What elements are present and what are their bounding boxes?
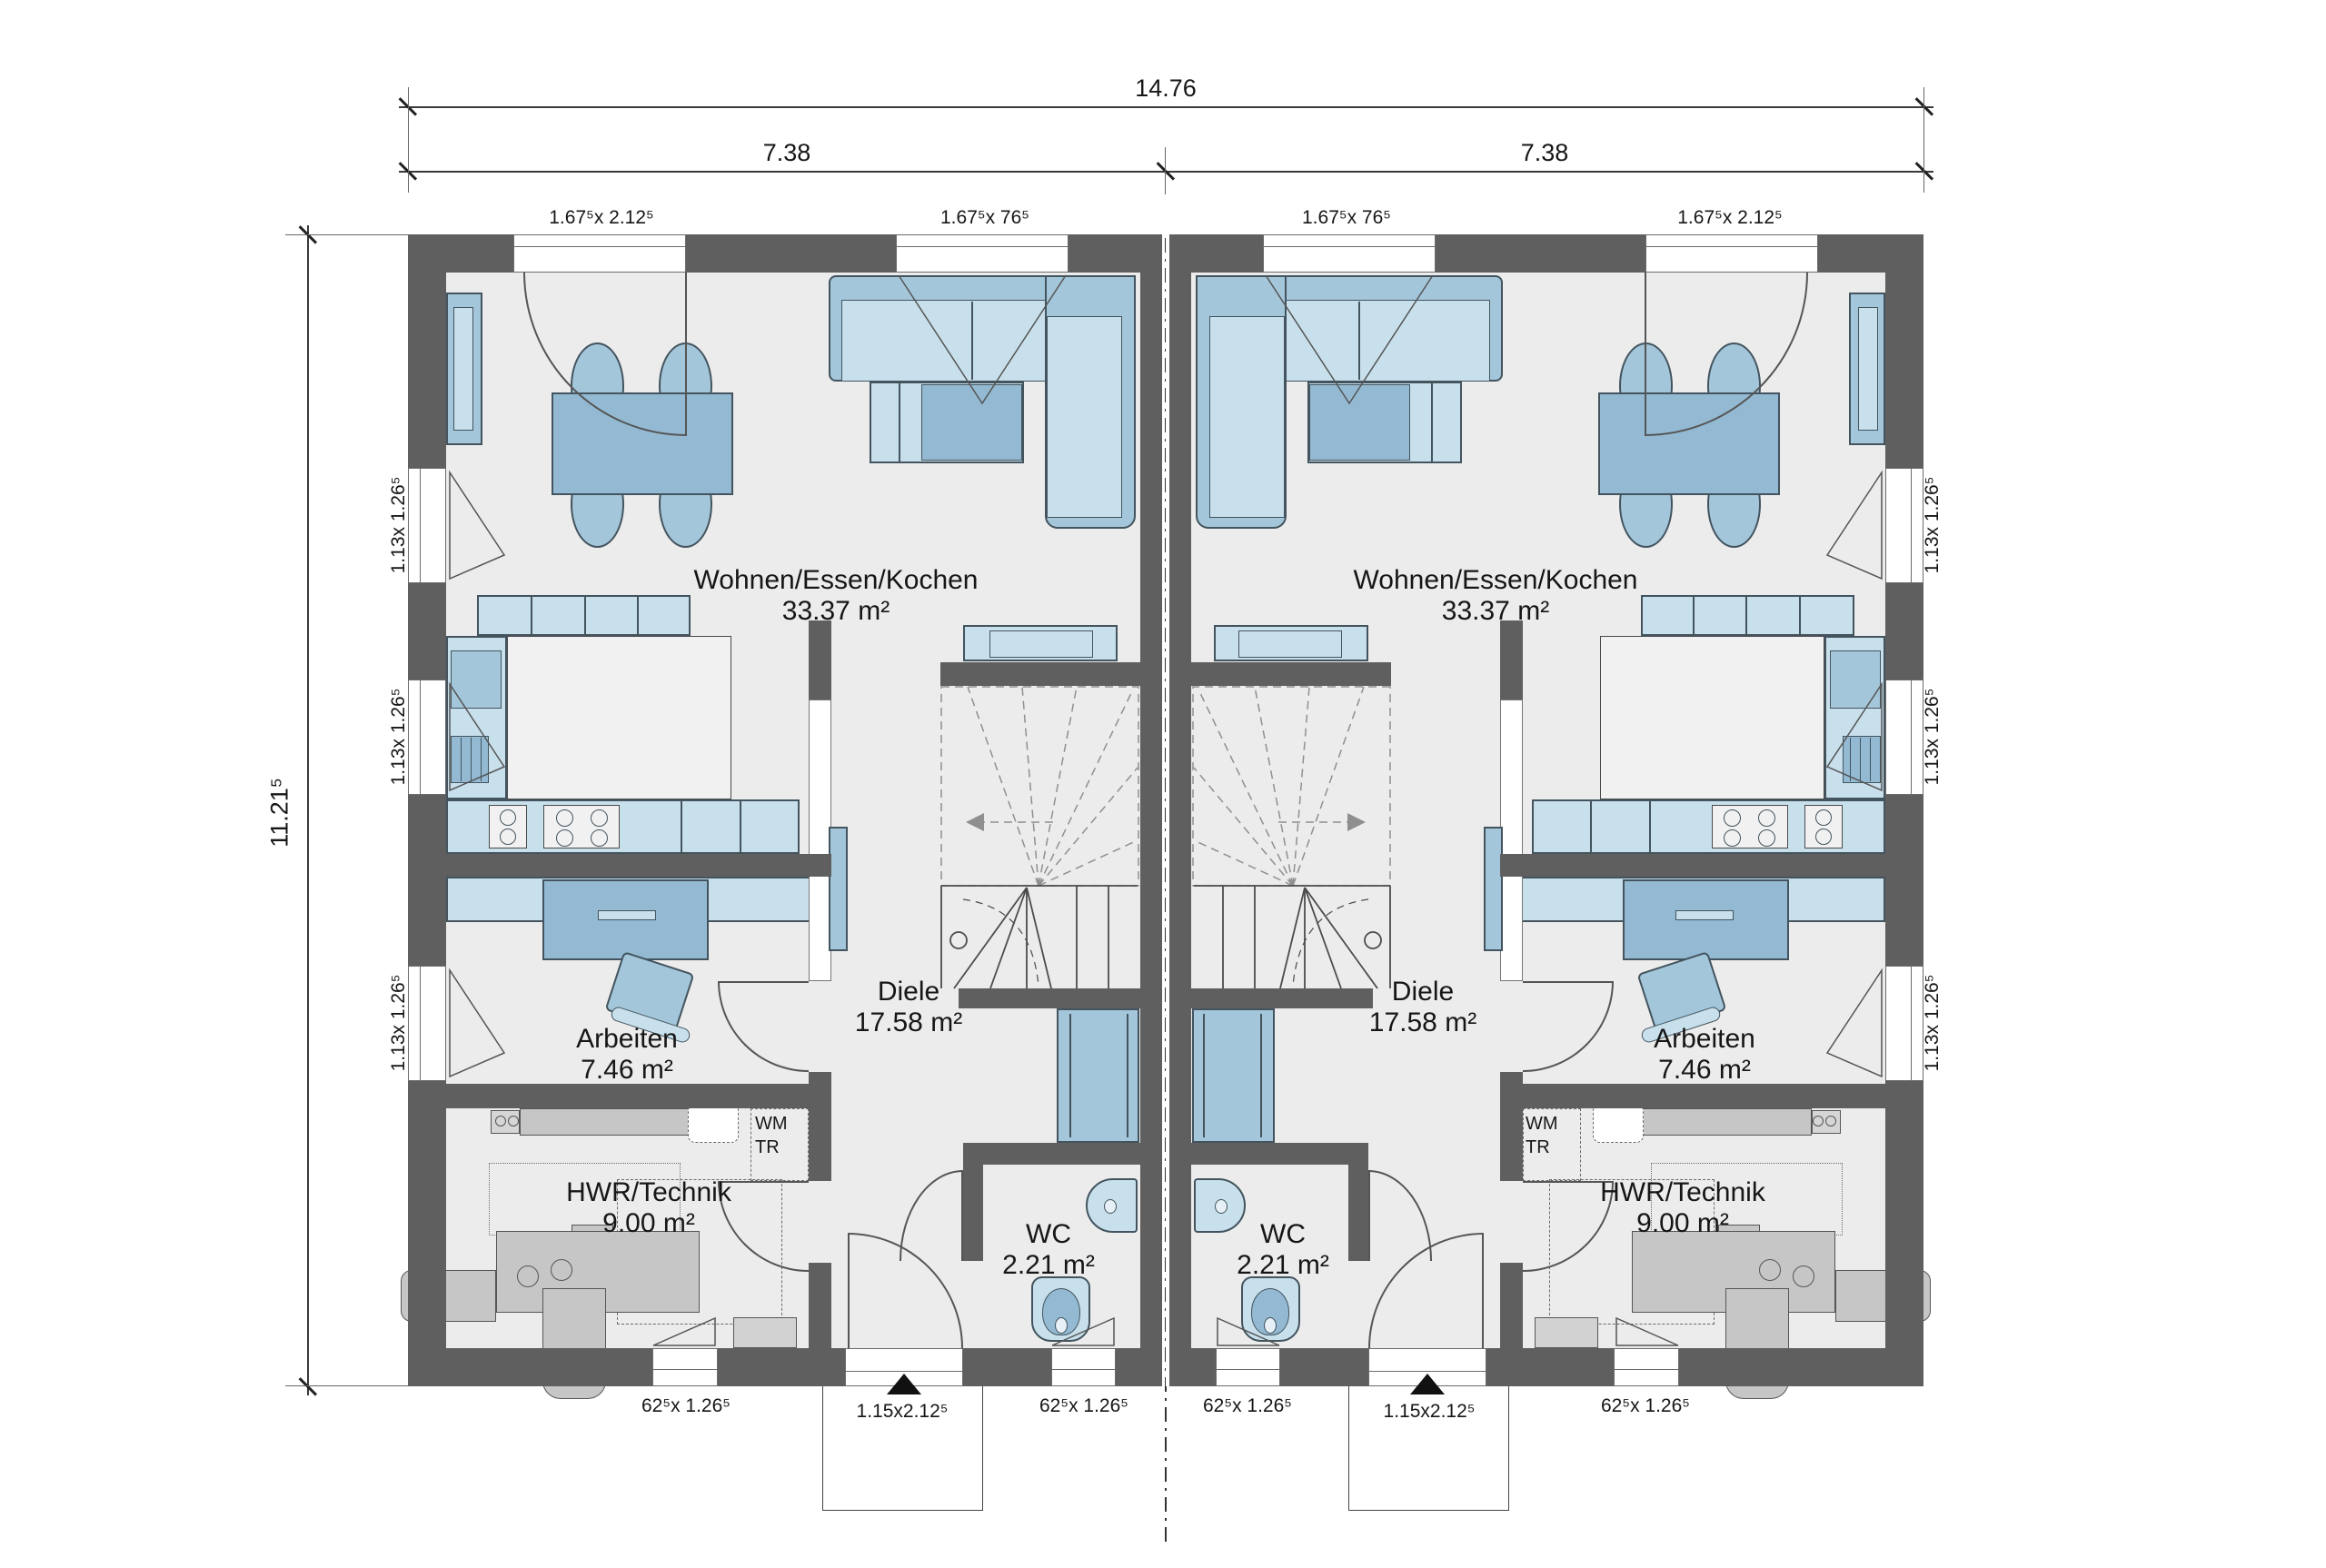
divider xyxy=(531,597,532,634)
wall-stair-north xyxy=(1169,662,1391,686)
room-name: Diele xyxy=(1332,977,1514,1007)
wall-wc-north xyxy=(963,1143,1162,1165)
room-area: 17.58 m² xyxy=(1332,1007,1514,1038)
window-label-side-2: 1.13x 1.26⁵ xyxy=(388,682,410,791)
utility-window-opening xyxy=(1614,1348,1679,1386)
kitchen-pass xyxy=(1500,700,1523,981)
window-label-terrace: 1.67⁵x 2.12⁵ xyxy=(1666,207,1794,229)
divider xyxy=(584,597,586,634)
entry-door-label: 1.15x2.12⁵ xyxy=(1375,1401,1484,1423)
dim-line-depth xyxy=(307,225,309,1395)
room-name: WC xyxy=(1210,1219,1356,1250)
wall-office-utility xyxy=(446,1084,831,1108)
divider xyxy=(1591,801,1593,852)
burner xyxy=(591,809,608,827)
room-name: Wohnen/Essen/Kochen xyxy=(1314,565,1677,596)
burner xyxy=(1724,829,1741,847)
window-swing-mark xyxy=(448,470,510,581)
window-label-terrace: 1.67⁵x 2.12⁵ xyxy=(538,207,665,229)
side-window-1 xyxy=(408,468,446,583)
room-label-utility: HWR/Technik 9.00 m² xyxy=(1546,1177,1819,1239)
entry-marker xyxy=(887,1374,921,1394)
extension-line xyxy=(408,87,409,193)
washbasin-drain xyxy=(1215,1199,1228,1214)
staircase xyxy=(1192,686,1391,988)
room-label-hall: Diele 17.58 m² xyxy=(1332,977,1514,1038)
side-window-3 xyxy=(408,966,446,1081)
room-label-hall: Diele 17.58 m² xyxy=(818,977,999,1038)
burner xyxy=(556,809,573,827)
window-swing-mark xyxy=(448,681,510,793)
side-window-2 xyxy=(1885,680,1923,795)
divider xyxy=(1800,597,1802,634)
extension-line xyxy=(285,234,408,235)
dim-left-width: 7.38 xyxy=(696,139,878,167)
divider xyxy=(1694,597,1695,634)
tr-label: TR xyxy=(755,1136,806,1159)
burner xyxy=(1758,809,1775,827)
pump-cap xyxy=(551,1259,572,1281)
window-label-utility: 62⁵x 1.26⁵ xyxy=(622,1395,750,1417)
floor-plan: Wohnen/Essen/Kochen 33.37 m² Diele 17.58… xyxy=(0,0,2326,1568)
room-label-wc: WC 2.21 m² xyxy=(1210,1219,1356,1281)
party-wall-leaf xyxy=(1140,234,1162,1386)
terrace-door-opening xyxy=(1645,234,1818,273)
hall-cabinet xyxy=(829,827,848,951)
room-area: 33.37 m² xyxy=(1314,596,1677,627)
utility-knob xyxy=(495,1116,506,1126)
window-swing-mark xyxy=(1822,470,1884,581)
room-area: 9.00 m² xyxy=(512,1208,785,1239)
wall-left xyxy=(1885,234,1923,1386)
window-swing-mark xyxy=(1612,1315,1681,1348)
room-name: WC xyxy=(976,1219,1121,1250)
divider xyxy=(740,801,741,852)
burner xyxy=(1758,829,1775,847)
divider xyxy=(681,801,682,852)
window-label-side-3: 1.13x 1.26⁵ xyxy=(388,968,410,1077)
kitchen-island xyxy=(507,636,731,799)
window-label-utility: 62⁵x 1.26⁵ xyxy=(1582,1395,1709,1417)
wall-hall-west-a xyxy=(809,620,831,700)
washbasin-drain xyxy=(1104,1199,1117,1214)
wall-hall-west-a xyxy=(1500,620,1523,700)
window-swing-mark xyxy=(651,1315,720,1348)
wall-wc-north xyxy=(1169,1143,1368,1165)
unit-right: Wohnen/Essen/Kochen 33.37 m² Diele 17.58… xyxy=(1166,234,1923,1386)
window-label-wc: 62⁵x 1.26⁵ xyxy=(1184,1395,1311,1417)
room-name: HWR/Technik xyxy=(1546,1177,1819,1208)
wall-stair-north xyxy=(940,662,1162,686)
wall-hall-west-b xyxy=(1500,1072,1523,1181)
wall-bottom xyxy=(1169,1348,1923,1386)
stair-sideboard-inner xyxy=(989,630,1093,658)
window-vent-mark xyxy=(1263,273,1436,407)
dim-right-width: 7.38 xyxy=(1454,139,1635,167)
utility-knob xyxy=(508,1116,519,1126)
hall-cabinet xyxy=(1484,827,1503,951)
extension-line xyxy=(1165,147,1166,194)
room-area: 33.37 m² xyxy=(654,596,1018,627)
sink-bowl xyxy=(1815,829,1832,845)
future-sink xyxy=(688,1104,739,1143)
divider xyxy=(1127,1014,1128,1137)
kitchen-island xyxy=(1600,636,1824,799)
window-label-fixed: 1.67⁵x 76⁵ xyxy=(921,207,1049,229)
stove xyxy=(1712,805,1788,849)
utility-window-opening xyxy=(652,1348,718,1386)
divider xyxy=(1746,597,1748,634)
wall-hall-west-c xyxy=(809,1263,831,1348)
party-wall-leaf xyxy=(1169,234,1191,1386)
utility-knob xyxy=(1813,1116,1824,1126)
utility-knob xyxy=(1825,1116,1836,1126)
dim-total-depth: 11.21⁵ xyxy=(266,739,294,885)
divider xyxy=(1650,801,1652,852)
staircase xyxy=(940,686,1139,988)
dim-line-total xyxy=(399,106,1933,108)
wm-tr-label: WM TR xyxy=(1526,1112,1576,1159)
utility-bench xyxy=(1535,1317,1598,1348)
sink-bowl xyxy=(500,829,516,845)
wm-label: WM xyxy=(1526,1112,1576,1136)
window-vent-mark xyxy=(896,273,1069,407)
room-area: 7.46 m² xyxy=(536,1055,718,1086)
sink-bowl xyxy=(1815,809,1832,826)
burner xyxy=(1724,809,1741,827)
extension-line xyxy=(1923,87,1924,193)
wall-kitchen-office xyxy=(446,854,831,877)
tall-cabinet-front xyxy=(453,307,473,431)
room-name: Wohnen/Essen/Kochen xyxy=(654,565,1018,596)
room-label-living: Wohnen/Essen/Kochen 33.37 m² xyxy=(654,565,1018,627)
wm-tr-label: WM TR xyxy=(755,1112,806,1159)
divider xyxy=(1069,1014,1071,1137)
wm-label: WM xyxy=(755,1112,806,1136)
window-swing-mark xyxy=(1213,1315,1282,1348)
room-label-utility: HWR/Technik 9.00 m² xyxy=(512,1177,785,1239)
wc-window-opening xyxy=(1216,1348,1280,1386)
party-wall-gap xyxy=(1166,234,1169,1386)
wall-kitchen-office xyxy=(1500,854,1885,877)
room-name: Arbeiten xyxy=(1614,1024,1795,1055)
fixed-window-opening xyxy=(1263,234,1436,273)
extension-line xyxy=(285,1385,408,1386)
future-sink xyxy=(1593,1104,1644,1143)
side-window-1 xyxy=(1885,468,1923,583)
room-label-wc: WC 2.21 m² xyxy=(976,1219,1121,1281)
tr-label: TR xyxy=(1526,1136,1576,1159)
unit-left: Wohnen/Essen/Kochen 33.37 m² Diele 17.58… xyxy=(408,234,1166,1386)
room-name: Diele xyxy=(818,977,999,1007)
room-area: 2.21 m² xyxy=(1210,1250,1356,1281)
wall-hall-west-c xyxy=(1500,1263,1523,1348)
window-swing-mark xyxy=(1822,681,1884,793)
window-label-side-1: 1.13x 1.26⁵ xyxy=(388,471,410,580)
utility-counter xyxy=(520,1108,691,1136)
fixed-window-opening xyxy=(896,234,1069,273)
utility-bench xyxy=(733,1317,797,1348)
entry-marker xyxy=(1410,1374,1445,1394)
window-swing-mark xyxy=(1049,1315,1118,1348)
stove xyxy=(543,805,620,849)
window-label-side-2: 1.13x 1.26⁵ xyxy=(1922,682,1943,791)
side-window-3 xyxy=(1885,966,1923,1081)
side-window-2 xyxy=(408,680,446,795)
room-label-office: Arbeiten 7.46 m² xyxy=(536,1024,718,1086)
window-label-side-3: 1.13x 1.26⁵ xyxy=(1922,968,1943,1077)
room-name: HWR/Technik xyxy=(512,1177,785,1208)
stair-sideboard-inner xyxy=(1238,630,1342,658)
window-label-fixed: 1.67⁵x 76⁵ xyxy=(1283,207,1410,229)
wall-office-utility xyxy=(1500,1084,1885,1108)
dim-total-width: 14.76 xyxy=(1075,74,1257,103)
window-swing-mark xyxy=(1822,968,1884,1079)
pump-cap xyxy=(517,1265,539,1287)
divider xyxy=(637,597,639,634)
entry-door-label: 1.15x2.12⁵ xyxy=(848,1401,957,1423)
room-area: 2.21 m² xyxy=(976,1250,1121,1281)
wc-window-opening xyxy=(1051,1348,1116,1386)
pump-cap xyxy=(1759,1259,1781,1281)
room-label-living: Wohnen/Essen/Kochen 33.37 m² xyxy=(1314,565,1677,627)
wall-bottom xyxy=(408,1348,1162,1386)
wall-left xyxy=(408,234,446,1386)
window-label-wc: 62⁵x 1.26⁵ xyxy=(1020,1395,1148,1417)
tall-cabinet-front xyxy=(1858,307,1878,431)
room-area: 17.58 m² xyxy=(818,1007,999,1038)
divider xyxy=(1204,1014,1206,1137)
pump-cap xyxy=(1793,1265,1814,1287)
utility-counter xyxy=(1641,1108,1812,1136)
burner xyxy=(556,829,573,847)
desk-handle xyxy=(1675,910,1734,920)
room-area: 7.46 m² xyxy=(1614,1055,1795,1086)
desk-handle xyxy=(598,910,656,920)
window-label-side-1: 1.13x 1.26⁵ xyxy=(1922,471,1943,580)
terrace-door-opening xyxy=(513,234,686,273)
room-name: Arbeiten xyxy=(536,1024,718,1055)
window-swing-mark xyxy=(448,968,510,1079)
wall-hall-west-b xyxy=(809,1072,831,1181)
burner xyxy=(591,829,608,847)
sink-bowl xyxy=(500,809,516,826)
room-label-office: Arbeiten 7.46 m² xyxy=(1614,1024,1795,1086)
divider xyxy=(1261,1014,1263,1137)
room-area: 9.00 m² xyxy=(1546,1208,1819,1239)
